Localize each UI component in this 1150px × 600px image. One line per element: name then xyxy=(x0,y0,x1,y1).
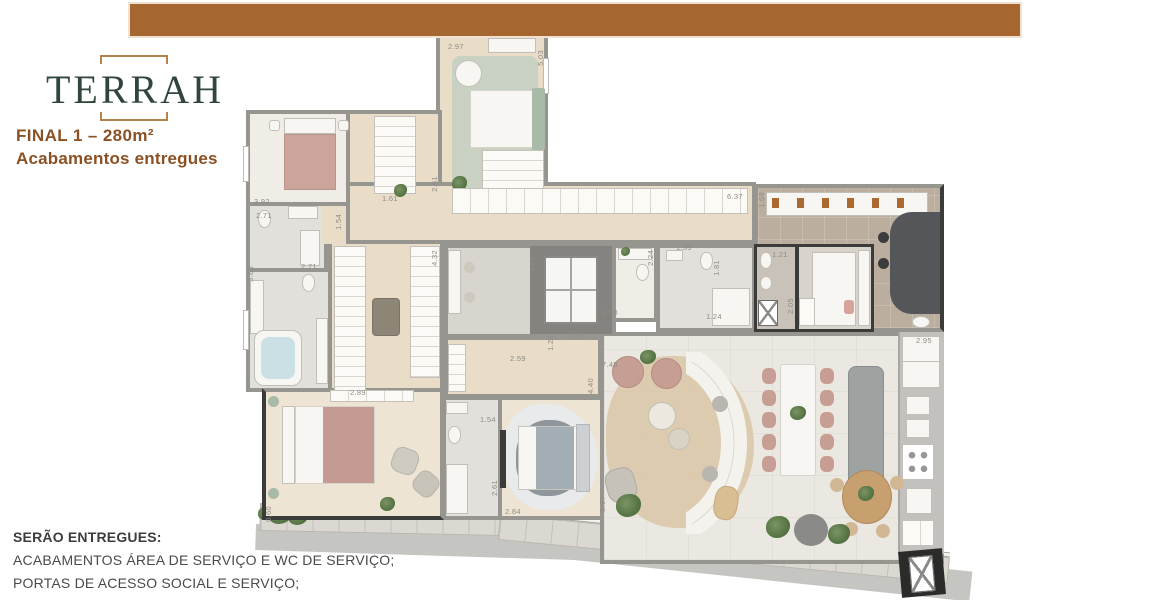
dimension-label: 1.76 xyxy=(570,331,586,340)
dimension-label: 1.24 xyxy=(706,312,722,321)
dimension-label: 2.71 xyxy=(301,262,317,271)
shower xyxy=(300,230,320,266)
window xyxy=(243,146,249,182)
vanity-sink xyxy=(446,402,468,414)
dimension-label: 1.81 xyxy=(712,260,721,276)
toilet xyxy=(636,264,649,281)
dimension-label: 2.95 xyxy=(916,336,932,345)
dimension-label: 2.84 xyxy=(505,507,521,516)
chair xyxy=(830,478,844,492)
sofa-cushion xyxy=(702,466,718,482)
pouf xyxy=(794,514,828,546)
dimension-label: 1.54 xyxy=(334,214,343,230)
nightstand xyxy=(338,120,349,131)
dining-table xyxy=(780,364,816,476)
stool xyxy=(878,258,889,269)
sofa-cushion xyxy=(712,396,728,412)
dimension-label: 6.37 xyxy=(727,192,743,201)
toilet xyxy=(760,252,772,269)
notes-title: SERÃO ENTREGUES: xyxy=(13,529,408,545)
dining-chair xyxy=(762,368,776,384)
dining-chair xyxy=(762,412,776,428)
bed-headboard xyxy=(282,406,295,484)
unit-subtitle: Acabamentos entregues xyxy=(16,149,218,169)
dimension-label: 1.50 xyxy=(602,308,618,317)
coffee-table xyxy=(648,402,676,430)
elevator-cab xyxy=(544,256,598,324)
dimension-label: 2.61 xyxy=(490,480,499,496)
nightstand xyxy=(269,120,280,131)
dimension-label: 2.97 xyxy=(448,42,464,51)
dimension-label: 2.05 xyxy=(786,298,795,314)
dimension-label: 5.97 xyxy=(598,496,607,512)
note-item: PORTAS DE ACESSO SOCIAL E SERVIÇO; xyxy=(13,575,408,591)
kitchen-appliances xyxy=(772,198,922,208)
dimension-label: 3.92 xyxy=(254,197,270,206)
desk xyxy=(488,38,536,53)
stool xyxy=(464,292,475,303)
dimension-label: 1.61 xyxy=(382,194,398,203)
dimension-label: 4.40 xyxy=(586,378,595,394)
armchair xyxy=(455,60,482,87)
bed-single xyxy=(812,252,856,326)
note-item: ACABAMENTOS ÁREA DE SERVIÇO E WC DE SERV… xyxy=(13,552,408,568)
bed-headboard xyxy=(576,424,590,492)
cooktop xyxy=(902,444,934,480)
shower xyxy=(758,300,778,326)
fridge-divider xyxy=(902,361,940,362)
drawers xyxy=(902,520,934,546)
corridor-master xyxy=(444,336,602,398)
chair xyxy=(876,524,890,538)
dimension-label: 1.68 xyxy=(757,192,766,208)
chair xyxy=(890,476,904,490)
coffee-table xyxy=(668,428,690,450)
dimension-label: 2.61 xyxy=(430,176,439,192)
dining-chair xyxy=(820,390,834,406)
bathtub-water xyxy=(261,337,295,379)
oven xyxy=(906,488,932,514)
closet-island xyxy=(372,298,400,336)
dimension-label: 3.63 xyxy=(246,266,255,282)
logo-bracket-top-icon xyxy=(100,55,168,64)
dining-chair xyxy=(820,456,834,472)
dining-chair xyxy=(762,456,776,472)
dining-chair xyxy=(820,368,834,384)
delivery-notes: SERÃO ENTREGUES: ACABAMENTOS ÁREA DE SER… xyxy=(13,529,408,600)
appliance xyxy=(906,419,930,438)
dimension-label: 2.89 xyxy=(350,388,366,397)
bed-headboard xyxy=(532,88,545,150)
kitchen-dark-counter xyxy=(890,212,940,314)
dimension-label: 2.59 xyxy=(510,354,526,363)
vanity-double xyxy=(250,280,264,334)
pillow xyxy=(844,300,854,314)
stool xyxy=(464,262,475,273)
shower xyxy=(446,464,468,514)
dimension-label: 1.54 xyxy=(480,415,496,424)
shelf xyxy=(858,250,870,326)
dining-chair xyxy=(820,412,834,428)
dimension-label: 7.49 xyxy=(602,360,618,369)
dimension-label: 2.71 xyxy=(256,211,272,220)
brand-logo: TERRAH xyxy=(30,66,240,113)
duct-vent xyxy=(908,555,935,593)
dining-chair xyxy=(762,434,776,450)
dimension-label: 2.24 xyxy=(646,250,655,266)
sink xyxy=(912,316,930,328)
dimension-label: 1.20 xyxy=(546,335,555,351)
wardrobe xyxy=(334,246,366,392)
dimension-label: 4.91 xyxy=(528,256,537,272)
dining-chair xyxy=(762,390,776,406)
drawers xyxy=(799,298,815,326)
bed-blanket xyxy=(323,407,374,483)
bed xyxy=(470,90,536,148)
bed-blanket xyxy=(536,427,574,489)
stool xyxy=(878,232,889,243)
bed-headboard xyxy=(284,118,336,134)
appliance xyxy=(906,396,930,415)
page: TERRAH FINAL 1 – 280m² Acabamentos entre… xyxy=(0,0,1150,600)
armchair xyxy=(651,358,682,389)
logo-bracket-bottom-icon xyxy=(100,112,168,121)
nightstand xyxy=(268,488,279,499)
nightstand xyxy=(268,396,279,407)
vanity-sink xyxy=(288,206,318,219)
window xyxy=(243,310,249,350)
sideboard xyxy=(448,250,461,314)
corridor-cabinets xyxy=(452,188,748,214)
header-bar xyxy=(128,2,1022,38)
toilet xyxy=(448,426,461,444)
toilet xyxy=(302,274,315,292)
dimension-label: 5.03 xyxy=(536,50,545,66)
dimension-label: 0.60 xyxy=(264,506,273,522)
dimension-label: 1.39 xyxy=(676,243,692,252)
tv-panel xyxy=(500,430,506,488)
bed xyxy=(284,134,336,190)
unit-title: FINAL 1 – 280m² xyxy=(16,126,154,146)
dimension-label: 4.32 xyxy=(430,250,439,266)
shower xyxy=(316,318,328,384)
dining-chair xyxy=(820,434,834,450)
wardrobe xyxy=(448,344,466,392)
sink xyxy=(760,276,772,290)
dimension-label: 1.21 xyxy=(772,250,788,259)
shelf xyxy=(330,390,414,402)
wardrobe xyxy=(374,116,416,194)
